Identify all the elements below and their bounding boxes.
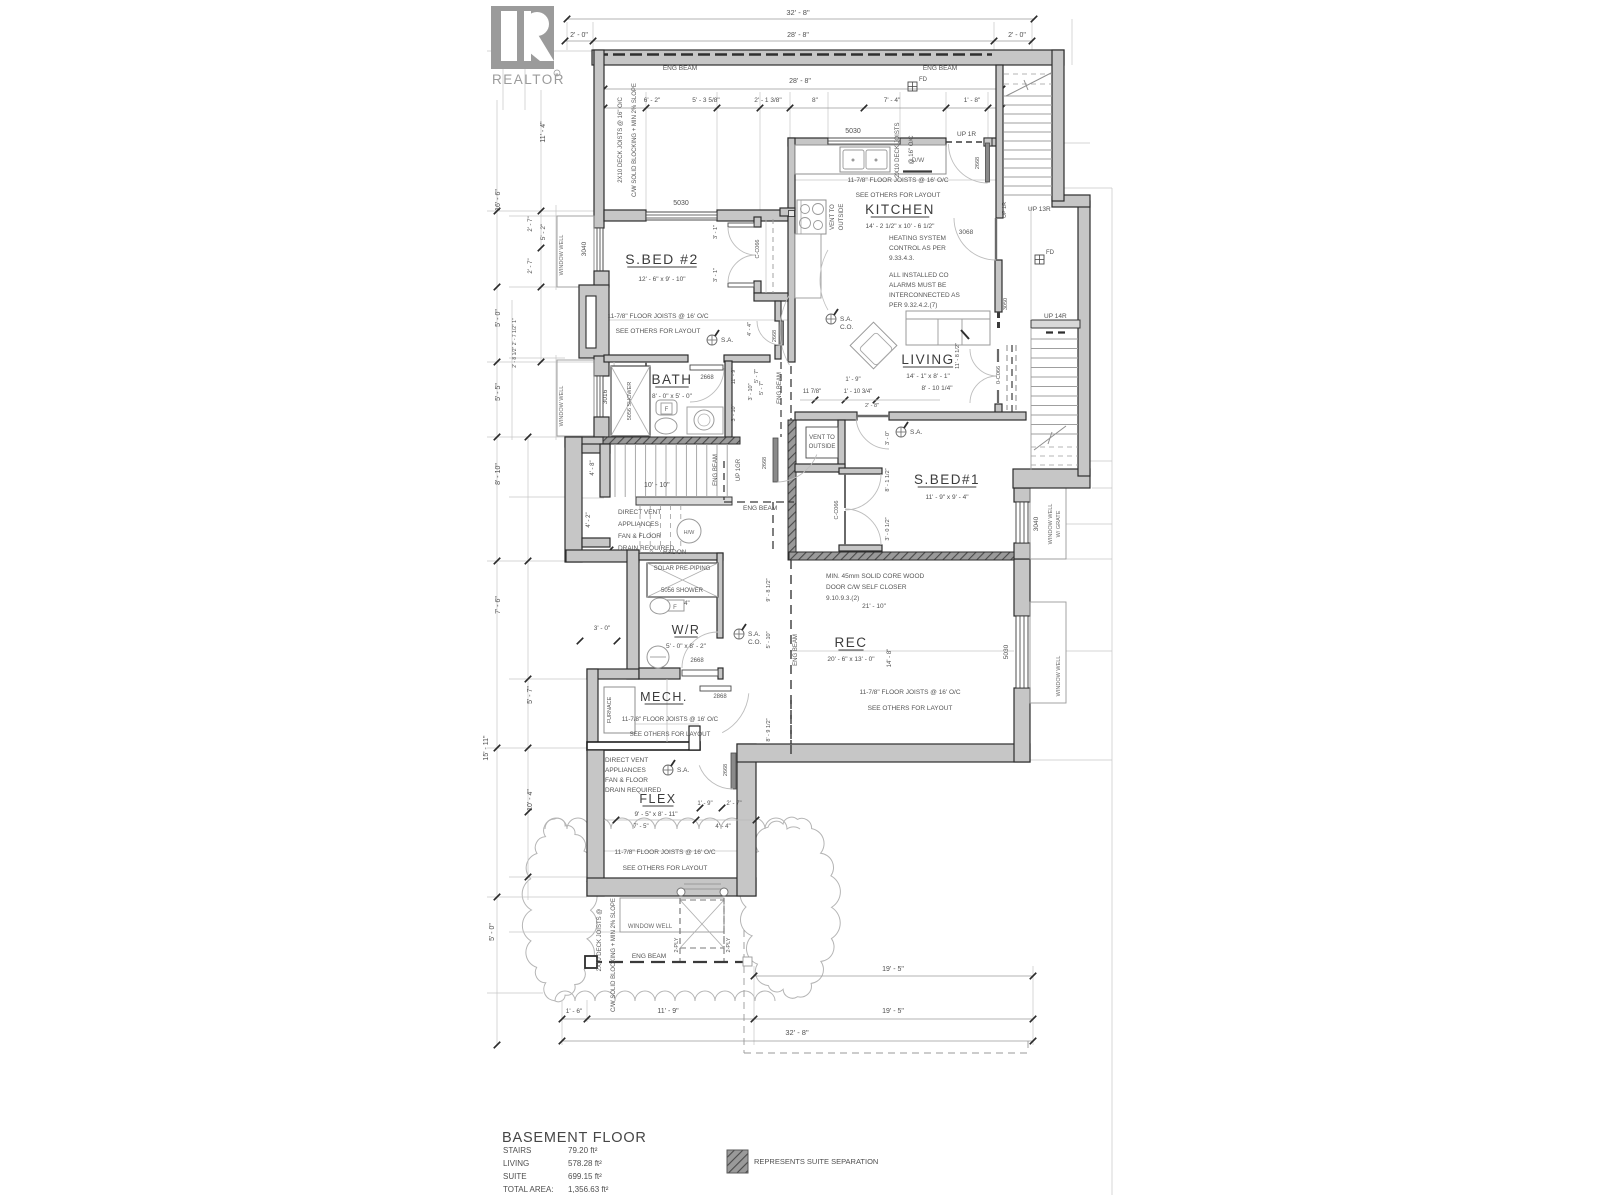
svg-text:11-7/8" FLOOR JOISTS @ 16' O/C: 11-7/8" FLOOR JOISTS @ 16' O/C [607, 313, 708, 320]
svg-text:20' - 6" x 13' - 0": 20' - 6" x 13' - 0" [827, 656, 875, 663]
svg-text:2' - 7": 2' - 7" [528, 258, 534, 273]
svg-text:S.A.: S.A. [748, 631, 760, 638]
svg-text:INTERCONNECTED AS: INTERCONNECTED AS [889, 292, 960, 299]
svg-text:FURNACE: FURNACE [607, 696, 613, 723]
svg-text:S.BED#1: S.BED#1 [914, 472, 980, 487]
svg-text:2X10 DECK JOISTS @: 2X10 DECK JOISTS @ [597, 909, 603, 972]
svg-text:SEE OTHERS FOR LAYOUT: SEE OTHERS FOR LAYOUT [856, 192, 941, 199]
svg-text:VENT TO: VENT TO [830, 204, 836, 230]
svg-text:3' - 1": 3' - 1" [713, 268, 719, 282]
svg-text:2668: 2668 [723, 764, 729, 776]
svg-text:ALL INSTALLED CO: ALL INSTALLED CO [889, 272, 949, 279]
svg-text:RADON: RADON [663, 549, 687, 556]
svg-text:S.A.: S.A. [840, 316, 852, 323]
svg-text:5' - 0": 5' - 0" [489, 923, 496, 941]
svg-text:2X10 DECK JOISTS @ 16" O/C: 2X10 DECK JOISTS @ 16" O/C [618, 97, 624, 183]
svg-text:28' - 8": 28' - 8" [787, 32, 809, 39]
svg-text:C/W SOLID BLOCKING + MIN 2% SL: C/W SOLID BLOCKING + MIN 2% SLOPE [611, 898, 617, 1012]
svg-text:2668: 2668 [772, 330, 778, 342]
svg-text:2668: 2668 [975, 157, 981, 169]
svg-text:LIVING: LIVING [901, 352, 954, 367]
svg-text:W/R: W/R [672, 623, 701, 637]
svg-text:32' - 8": 32' - 8" [785, 1028, 809, 1037]
svg-text:8' - 9 1/2": 8' - 9 1/2" [766, 718, 772, 741]
svg-text:R: R [556, 72, 559, 77]
svg-text:9.10.9.3.(2): 9.10.9.3.(2) [826, 595, 859, 602]
svg-text:15' - 11": 15' - 11" [483, 735, 490, 761]
svg-text:F: F [665, 407, 669, 413]
svg-text:HEATING SYSTEM: HEATING SYSTEM [889, 235, 946, 242]
svg-text:32' - 8": 32' - 8" [786, 8, 810, 17]
svg-text:@ 16" O/C: @ 16" O/C [909, 135, 915, 165]
svg-text:1' - 8": 1' - 8" [964, 97, 981, 104]
svg-text:W/ GRATE: W/ GRATE [1056, 510, 1062, 537]
svg-text:BATH: BATH [651, 372, 692, 387]
svg-text:7' - 4": 7' - 4" [884, 97, 901, 104]
svg-text:5' - 3 5/8": 5' - 3 5/8" [692, 97, 720, 104]
svg-text:UP 1R: UP 1R [1002, 202, 1008, 218]
svg-text:2' - 0": 2' - 0" [570, 32, 588, 39]
svg-text:2' - 8": 2' - 8" [865, 403, 879, 409]
svg-text:5' - 7": 5' - 7" [759, 381, 765, 395]
svg-text:3' - 1": 3' - 1" [713, 225, 719, 239]
svg-text:19' - 5": 19' - 5" [882, 966, 904, 973]
svg-text:F: F [673, 605, 677, 611]
svg-text:WINDOW WELL: WINDOW WELL [559, 235, 565, 276]
svg-text:1' - 6": 1' - 6" [566, 1008, 583, 1015]
svg-text:SEE OTHERS FOR LAYOUT: SEE OTHERS FOR LAYOUT [868, 705, 953, 712]
svg-text:4' - 4": 4' - 4" [747, 322, 753, 336]
svg-text:3' - 10": 3' - 10" [748, 383, 754, 400]
svg-text:ENG BEAM: ENG BEAM [923, 65, 957, 72]
svg-text:2' - 7": 2' - 7" [726, 801, 741, 807]
svg-text:5056 SHOWER: 5056 SHOWER [627, 382, 633, 421]
svg-text:5030: 5030 [673, 200, 689, 207]
svg-text:APPLIANCES: APPLIANCES [618, 521, 659, 528]
svg-text:2' - 8 1/2" 2' - 7 1/2" 1": 2' - 8 1/2" 2' - 7 1/2" 1" [512, 318, 518, 368]
svg-text:4' - 4": 4' - 4" [715, 824, 730, 830]
svg-text:OUTSIDE: OUTSIDE [809, 444, 836, 450]
svg-text:8' - 0" x 5' - 0": 8' - 0" x 5' - 0" [652, 393, 693, 400]
svg-text:11' - 8 1/2": 11' - 8 1/2" [955, 343, 961, 369]
svg-text:ALARMS MUST BE: ALARMS MUST BE [889, 282, 947, 289]
svg-text:2668: 2668 [700, 375, 714, 381]
svg-text:19' - 5": 19' - 5" [882, 1008, 904, 1015]
svg-text:VENT TO: VENT TO [809, 435, 835, 441]
svg-text:9' - 8 1/2": 9' - 8 1/2" [766, 578, 772, 601]
svg-text:4' - 8": 4' - 8" [590, 460, 596, 475]
svg-text:FAN & FLOOR: FAN & FLOOR [618, 533, 661, 540]
svg-text:PER 9.32.4.2.(7): PER 9.32.4.2.(7) [889, 302, 937, 309]
svg-text:11 7/8": 11 7/8" [803, 389, 821, 395]
svg-text:UP 1R: UP 1R [957, 131, 976, 138]
svg-text:REPRESENTS SUITE SEPARATION: REPRESENTS SUITE SEPARATION [754, 1157, 878, 1166]
svg-text:11' - 9": 11' - 9" [657, 1008, 679, 1015]
svg-text:SEE OTHERS FOR LAYOUT: SEE OTHERS FOR LAYOUT [630, 731, 711, 738]
svg-text:10' - 10": 10' - 10" [644, 482, 670, 489]
svg-text:OUTSIDE: OUTSIDE [839, 204, 845, 231]
svg-text:STAIRS: STAIRS [503, 1146, 531, 1155]
svg-text:14' - 1" x 8' - 1": 14' - 1" x 8' - 1" [906, 373, 950, 380]
svg-text:1' - 10 3/4": 1' - 10 3/4" [844, 389, 873, 395]
svg-text:14' - 2 1/2" x 10' - 6 1/2": 14' - 2 1/2" x 10' - 6 1/2" [866, 223, 936, 230]
svg-text:28' - 8": 28' - 8" [789, 78, 811, 85]
svg-text:SUITE: SUITE [503, 1172, 527, 1181]
svg-text:3' - 0": 3' - 0" [594, 625, 611, 632]
svg-text:5' - 10": 5' - 10" [766, 631, 772, 648]
svg-text:11-7/8" FLOOR JOISTS @ 16' O/C: 11-7/8" FLOOR JOISTS @ 16' O/C [614, 849, 715, 856]
svg-text:0-C066: 0-C066 [996, 366, 1002, 384]
svg-text:S.A.: S.A. [721, 337, 733, 344]
svg-text:C-C066: C-C066 [755, 240, 761, 259]
svg-text:5030: 5030 [1003, 644, 1010, 659]
svg-text:79.20 ft²: 79.20 ft² [568, 1146, 598, 1155]
svg-text:ENG BEAM: ENG BEAM [793, 634, 799, 666]
svg-text:REC: REC [834, 635, 867, 650]
svg-text:8' - 1 1/2": 8' - 1 1/2" [885, 468, 891, 491]
svg-text:5' - 0": 5' - 0" [495, 309, 502, 327]
svg-text:SEE OTHERS FOR LAYOUT: SEE OTHERS FOR LAYOUT [623, 865, 708, 872]
svg-text:1' - 9": 1' - 9" [697, 801, 712, 807]
svg-text:2' - 0": 2' - 0" [1008, 32, 1026, 39]
svg-text:3' - 0 1/2": 3' - 0 1/2" [885, 517, 891, 540]
svg-text:WINDOW WELL: WINDOW WELL [628, 924, 673, 930]
svg-text:11' - 9": 11' - 9" [731, 368, 737, 385]
svg-text:CONTROL AS PER: CONTROL AS PER [889, 245, 946, 252]
svg-text:DOOR C/W SELF CLOSER: DOOR C/W SELF CLOSER [826, 584, 907, 591]
svg-text:6' - 2": 6' - 2" [644, 97, 661, 104]
svg-text:WINDOW WELL: WINDOW WELL [559, 386, 565, 427]
svg-text:ENG BEAM: ENG BEAM [713, 454, 719, 486]
svg-text:UP 14R: UP 14R [1044, 313, 1067, 320]
svg-text:C.O.: C.O. [840, 324, 854, 331]
svg-text:5030: 5030 [845, 128, 861, 135]
svg-text:UP 13R: UP 13R [1028, 206, 1051, 213]
svg-text:11-7/8" FLOOR JOISTS @ 16' O/C: 11-7/8" FLOOR JOISTS @ 16' O/C [859, 689, 960, 696]
svg-text:11' - 9" x 9' - 4": 11' - 9" x 9' - 4" [925, 494, 969, 501]
svg-text:2' - 7": 2' - 7" [528, 216, 534, 231]
svg-text:7' - 5": 7' - 5" [633, 824, 648, 830]
svg-text:FD: FD [919, 77, 928, 83]
svg-text:2X10 DECK JOISTS: 2X10 DECK JOISTS [895, 122, 901, 177]
svg-text:ENG BEAM: ENG BEAM [777, 372, 783, 404]
svg-text:2668: 2668 [762, 457, 768, 469]
svg-text:DIRECT VENT: DIRECT VENT [618, 509, 661, 516]
svg-text:FLEX: FLEX [639, 792, 676, 806]
svg-text:1,356.63 ft²: 1,356.63 ft² [568, 1185, 609, 1194]
svg-text:C.O.: C.O. [748, 639, 762, 646]
svg-text:1' - 9": 1' - 9" [845, 377, 860, 383]
svg-text:2' - 1 3/8": 2' - 1 3/8" [754, 97, 782, 104]
svg-text:SEE OTHERS FOR LAYOUT: SEE OTHERS FOR LAYOUT [616, 328, 701, 335]
svg-text:5' - 7": 5' - 7" [754, 369, 760, 383]
svg-text:C/W SOLID BLOCKING + MIN 2% SL: C/W SOLID BLOCKING + MIN 2% SLOPE [632, 83, 638, 197]
svg-text:9' - 5" x 8' - 11": 9' - 5" x 8' - 11" [634, 811, 678, 818]
svg-text:5' - 5": 5' - 5" [495, 383, 502, 401]
svg-text:2-PLY: 2-PLY [674, 937, 680, 952]
svg-text:8": 8" [812, 97, 819, 104]
svg-text:FD: FD [1046, 250, 1055, 256]
svg-text:699.15 ft²: 699.15 ft² [568, 1172, 602, 1181]
svg-text:WINDOW WELL: WINDOW WELL [1056, 656, 1062, 697]
svg-text:SOLAR PRE-PIPING: SOLAR PRE-PIPING [654, 566, 711, 572]
svg-text:DIRECT VENT: DIRECT VENT [605, 757, 648, 764]
svg-text:12' - 6" x 9' - 10": 12' - 6" x 9' - 10" [638, 276, 686, 283]
svg-text:7' - 6": 7' - 6" [495, 596, 502, 614]
svg-text:11' - 4": 11' - 4" [540, 121, 547, 143]
svg-text:ENG BEAM: ENG BEAM [632, 953, 666, 960]
svg-text:ENG BEAM: ENG BEAM [663, 65, 697, 72]
svg-text:578.28 ft²: 578.28 ft² [568, 1159, 602, 1168]
svg-text:21' - 10": 21' - 10" [862, 603, 886, 610]
svg-text:S.A.: S.A. [910, 429, 922, 436]
svg-text:11-7/8" FLOOR JOISTS @ 16' O/C: 11-7/8" FLOOR JOISTS @ 16' O/C [847, 177, 948, 184]
svg-text:2668: 2668 [690, 658, 704, 664]
svg-text:10' - 4": 10' - 4" [527, 789, 534, 811]
svg-text:APPLIANCES: APPLIANCES [605, 767, 646, 774]
svg-text:LIVING: LIVING [503, 1159, 529, 1168]
svg-text:11-7/8" FLOOR JOISTS @ 16' O/C: 11-7/8" FLOOR JOISTS @ 16' O/C [622, 716, 719, 723]
svg-text:16' - 6": 16' - 6" [495, 189, 502, 211]
svg-text:5' - 2": 5' - 2" [540, 223, 547, 240]
svg-text:ENG BEAM: ENG BEAM [743, 505, 777, 512]
svg-text:5' - 0" x 8' - 2": 5' - 0" x 8' - 2" [666, 643, 707, 650]
svg-text:3040: 3040 [581, 241, 588, 256]
svg-text:3' - 0": 3' - 0" [885, 431, 891, 445]
svg-text:5056 SHOWER: 5056 SHOWER [661, 588, 704, 594]
svg-text:BASEMENT FLOOR: BASEMENT FLOOR [502, 1130, 647, 1146]
svg-text:FAN & FLOOR: FAN & FLOOR [605, 777, 648, 784]
svg-text:3' - 10": 3' - 10" [731, 404, 737, 421]
svg-text:9.33.4.3.: 9.33.4.3. [889, 255, 914, 262]
svg-text:MECH.: MECH. [640, 690, 688, 704]
svg-text:C-C066: C-C066 [834, 501, 840, 520]
svg-text:3040: 3040 [1033, 516, 1040, 531]
svg-text:2868: 2868 [713, 694, 727, 700]
svg-text:8' - 10 1/4": 8' - 10 1/4" [921, 385, 953, 392]
svg-text:H/W: H/W [684, 530, 696, 536]
svg-text:5' - 7": 5' - 7" [527, 686, 534, 704]
svg-text:UP 1GR: UP 1GR [736, 458, 742, 481]
svg-text:2-PLY: 2-PLY [726, 937, 732, 952]
svg-text:3050: 3050 [1003, 298, 1009, 310]
svg-text:MIN. 45mm SOLID CORE WOOD: MIN. 45mm SOLID CORE WOOD [826, 573, 925, 580]
svg-text:KITCHEN: KITCHEN [865, 202, 935, 217]
svg-text:8' - 10": 8' - 10" [495, 463, 502, 485]
svg-text:4' - 2": 4' - 2" [586, 512, 592, 527]
svg-text:WINDOW WELL: WINDOW WELL [1048, 504, 1054, 545]
svg-text:S.BED #2: S.BED #2 [625, 251, 698, 267]
svg-text:TOTAL AREA:: TOTAL AREA: [503, 1185, 554, 1194]
svg-text:S.A.: S.A. [677, 767, 689, 774]
svg-text:14' - 8": 14' - 8" [887, 649, 893, 668]
svg-text:3068: 3068 [959, 229, 974, 236]
